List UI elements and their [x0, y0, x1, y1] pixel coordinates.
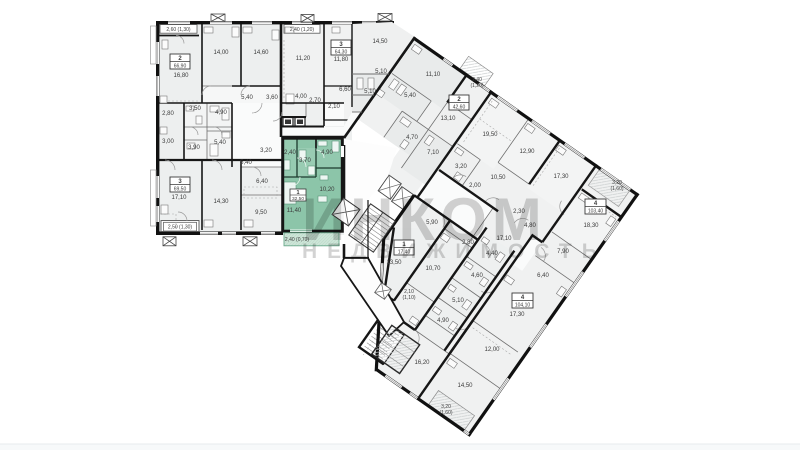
svg-text:(1,60): (1,60): [439, 410, 452, 416]
svg-text:64,30: 64,30: [335, 50, 348, 56]
svg-text:11,80: 11,80: [334, 57, 349, 63]
svg-text:3,20: 3,20: [260, 148, 272, 154]
svg-text:4,90: 4,90: [437, 318, 449, 324]
svg-text:5,40: 5,40: [241, 95, 253, 101]
svg-text:14,60: 14,60: [253, 50, 269, 56]
svg-text:(1,20): (1,20): [470, 83, 483, 89]
svg-text:14,00: 14,00: [213, 50, 229, 56]
svg-text:12,90: 12,90: [519, 149, 535, 155]
svg-text:(1,60): (1,60): [610, 186, 623, 192]
svg-text:3,00: 3,00: [162, 139, 174, 145]
svg-text:6,60: 6,60: [339, 87, 351, 93]
svg-text:16,80: 16,80: [173, 73, 189, 79]
svg-text:2,70: 2,70: [309, 98, 321, 104]
svg-text:2,50 (1,30): 2,50 (1,30): [168, 225, 193, 231]
svg-text:17,10: 17,10: [171, 195, 187, 201]
svg-text:6,40: 6,40: [256, 179, 268, 185]
svg-text:3,20: 3,20: [455, 164, 467, 170]
svg-text:14,30: 14,30: [213, 199, 229, 205]
svg-text:11,10: 11,10: [426, 72, 441, 78]
svg-text:2,10: 2,10: [328, 104, 340, 110]
svg-text:(1,10): (1,10): [402, 295, 415, 301]
svg-text:2,60 (1,30): 2,60 (1,30): [166, 27, 191, 33]
svg-text:5,10: 5,10: [375, 69, 387, 75]
svg-text:4,90: 4,90: [321, 150, 333, 156]
svg-text:18,30: 18,30: [583, 223, 599, 229]
svg-text:14,50: 14,50: [372, 39, 388, 45]
svg-text:2,80: 2,80: [162, 111, 174, 117]
svg-text:66,90: 66,90: [174, 64, 187, 70]
svg-text:103,40: 103,40: [588, 209, 604, 215]
svg-text:9,50: 9,50: [255, 210, 267, 216]
svg-text:4,90: 4,90: [215, 110, 227, 116]
svg-text:17,30: 17,30: [509, 312, 525, 318]
svg-text:3,90: 3,90: [188, 145, 200, 151]
svg-text:2,40 (1,20): 2,40 (1,20): [290, 27, 315, 33]
svg-text:17,30: 17,30: [553, 174, 569, 180]
svg-text:5,40: 5,40: [240, 160, 252, 166]
svg-text:10,50: 10,50: [490, 175, 506, 181]
svg-text:4,00: 4,00: [295, 94, 307, 100]
svg-text:11,40: 11,40: [287, 208, 302, 214]
svg-text:НЕДВИЖИМОСТЬ: НЕДВИЖИМОСТЬ: [302, 240, 607, 263]
svg-text:4,60: 4,60: [471, 273, 483, 279]
svg-text:13,10: 13,10: [440, 116, 456, 122]
svg-text:3,60: 3,60: [266, 95, 278, 101]
svg-text:7,10: 7,10: [427, 150, 439, 156]
svg-text:2,40: 2,40: [284, 150, 296, 156]
svg-text:5,40: 5,40: [214, 140, 226, 146]
svg-text:12,00: 12,00: [484, 347, 500, 353]
svg-text:69,50: 69,50: [174, 187, 187, 193]
svg-text:42,60: 42,60: [453, 105, 466, 111]
svg-text:10,70: 10,70: [425, 266, 441, 272]
svg-text:4,70: 4,70: [406, 135, 418, 141]
svg-text:14,50: 14,50: [457, 383, 473, 389]
svg-text:3,70: 3,70: [299, 158, 311, 164]
svg-text:5,10: 5,10: [364, 89, 376, 95]
svg-text:1: 1: [296, 190, 299, 196]
svg-text:19,50: 19,50: [482, 132, 498, 138]
svg-text:11,20: 11,20: [296, 56, 311, 62]
svg-text:5,10: 5,10: [452, 298, 464, 304]
svg-text:104,10: 104,10: [515, 303, 531, 309]
svg-text:16,20: 16,20: [414, 360, 430, 366]
svg-text:5,40: 5,40: [404, 93, 416, 99]
svg-text:6,40: 6,40: [537, 273, 549, 279]
svg-text:3,50: 3,50: [189, 106, 201, 112]
